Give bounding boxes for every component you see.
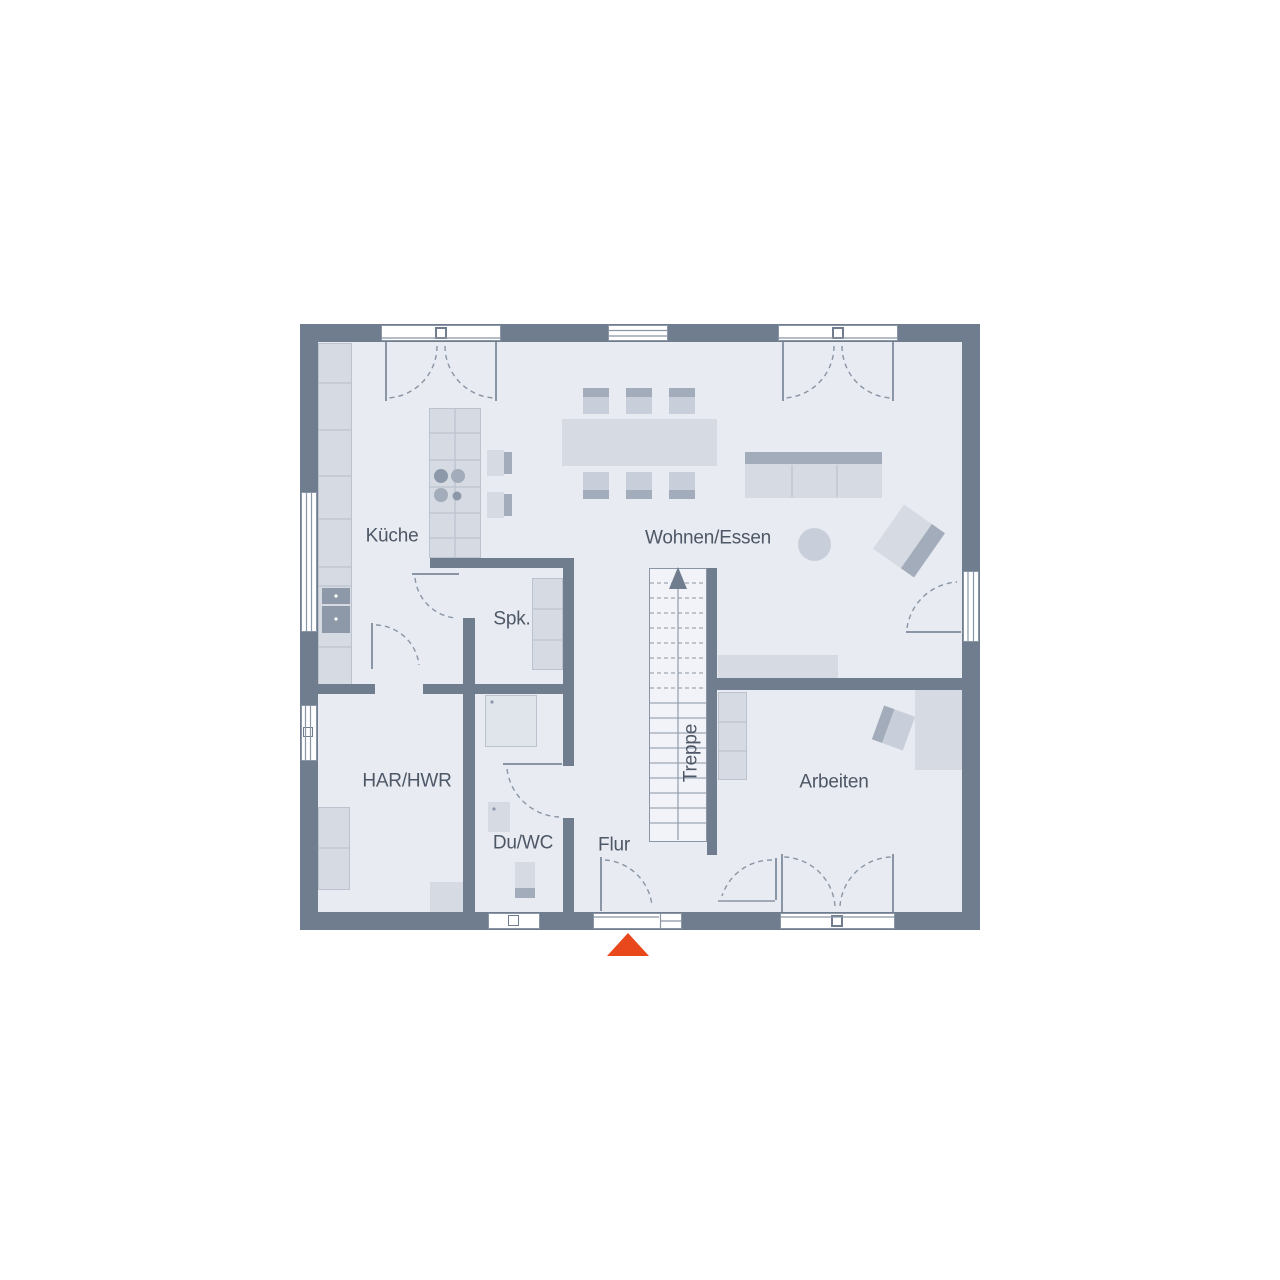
room-label-office: Arbeiten <box>799 773 868 792</box>
stair-direction-arrow-icon <box>669 567 687 589</box>
door-swing-arcs <box>376 346 957 906</box>
stair-treads <box>650 583 706 840</box>
window-glazing-lines <box>306 331 974 930</box>
room-label-stairs: Treppe <box>682 724 701 782</box>
room-label-kitchen: Küche <box>366 527 419 546</box>
door-leaves <box>372 342 961 912</box>
room-label-hallway: Flur <box>598 836 630 855</box>
room-label-utility: HAR/HWR <box>362 772 451 791</box>
linework-overlay <box>0 0 1280 1280</box>
room-label-shower-wc: Du/WC <box>493 834 553 853</box>
room-label-living-dining: Wohnen/Essen <box>645 529 771 548</box>
entrance-arrow-icon <box>607 933 649 956</box>
floor-plan: Küche Wohnen/Essen Spk. Treppe HAR/HWR D… <box>0 0 1280 1280</box>
cooktop-icon <box>334 469 495 811</box>
room-label-pantry: Spk. <box>493 610 530 629</box>
